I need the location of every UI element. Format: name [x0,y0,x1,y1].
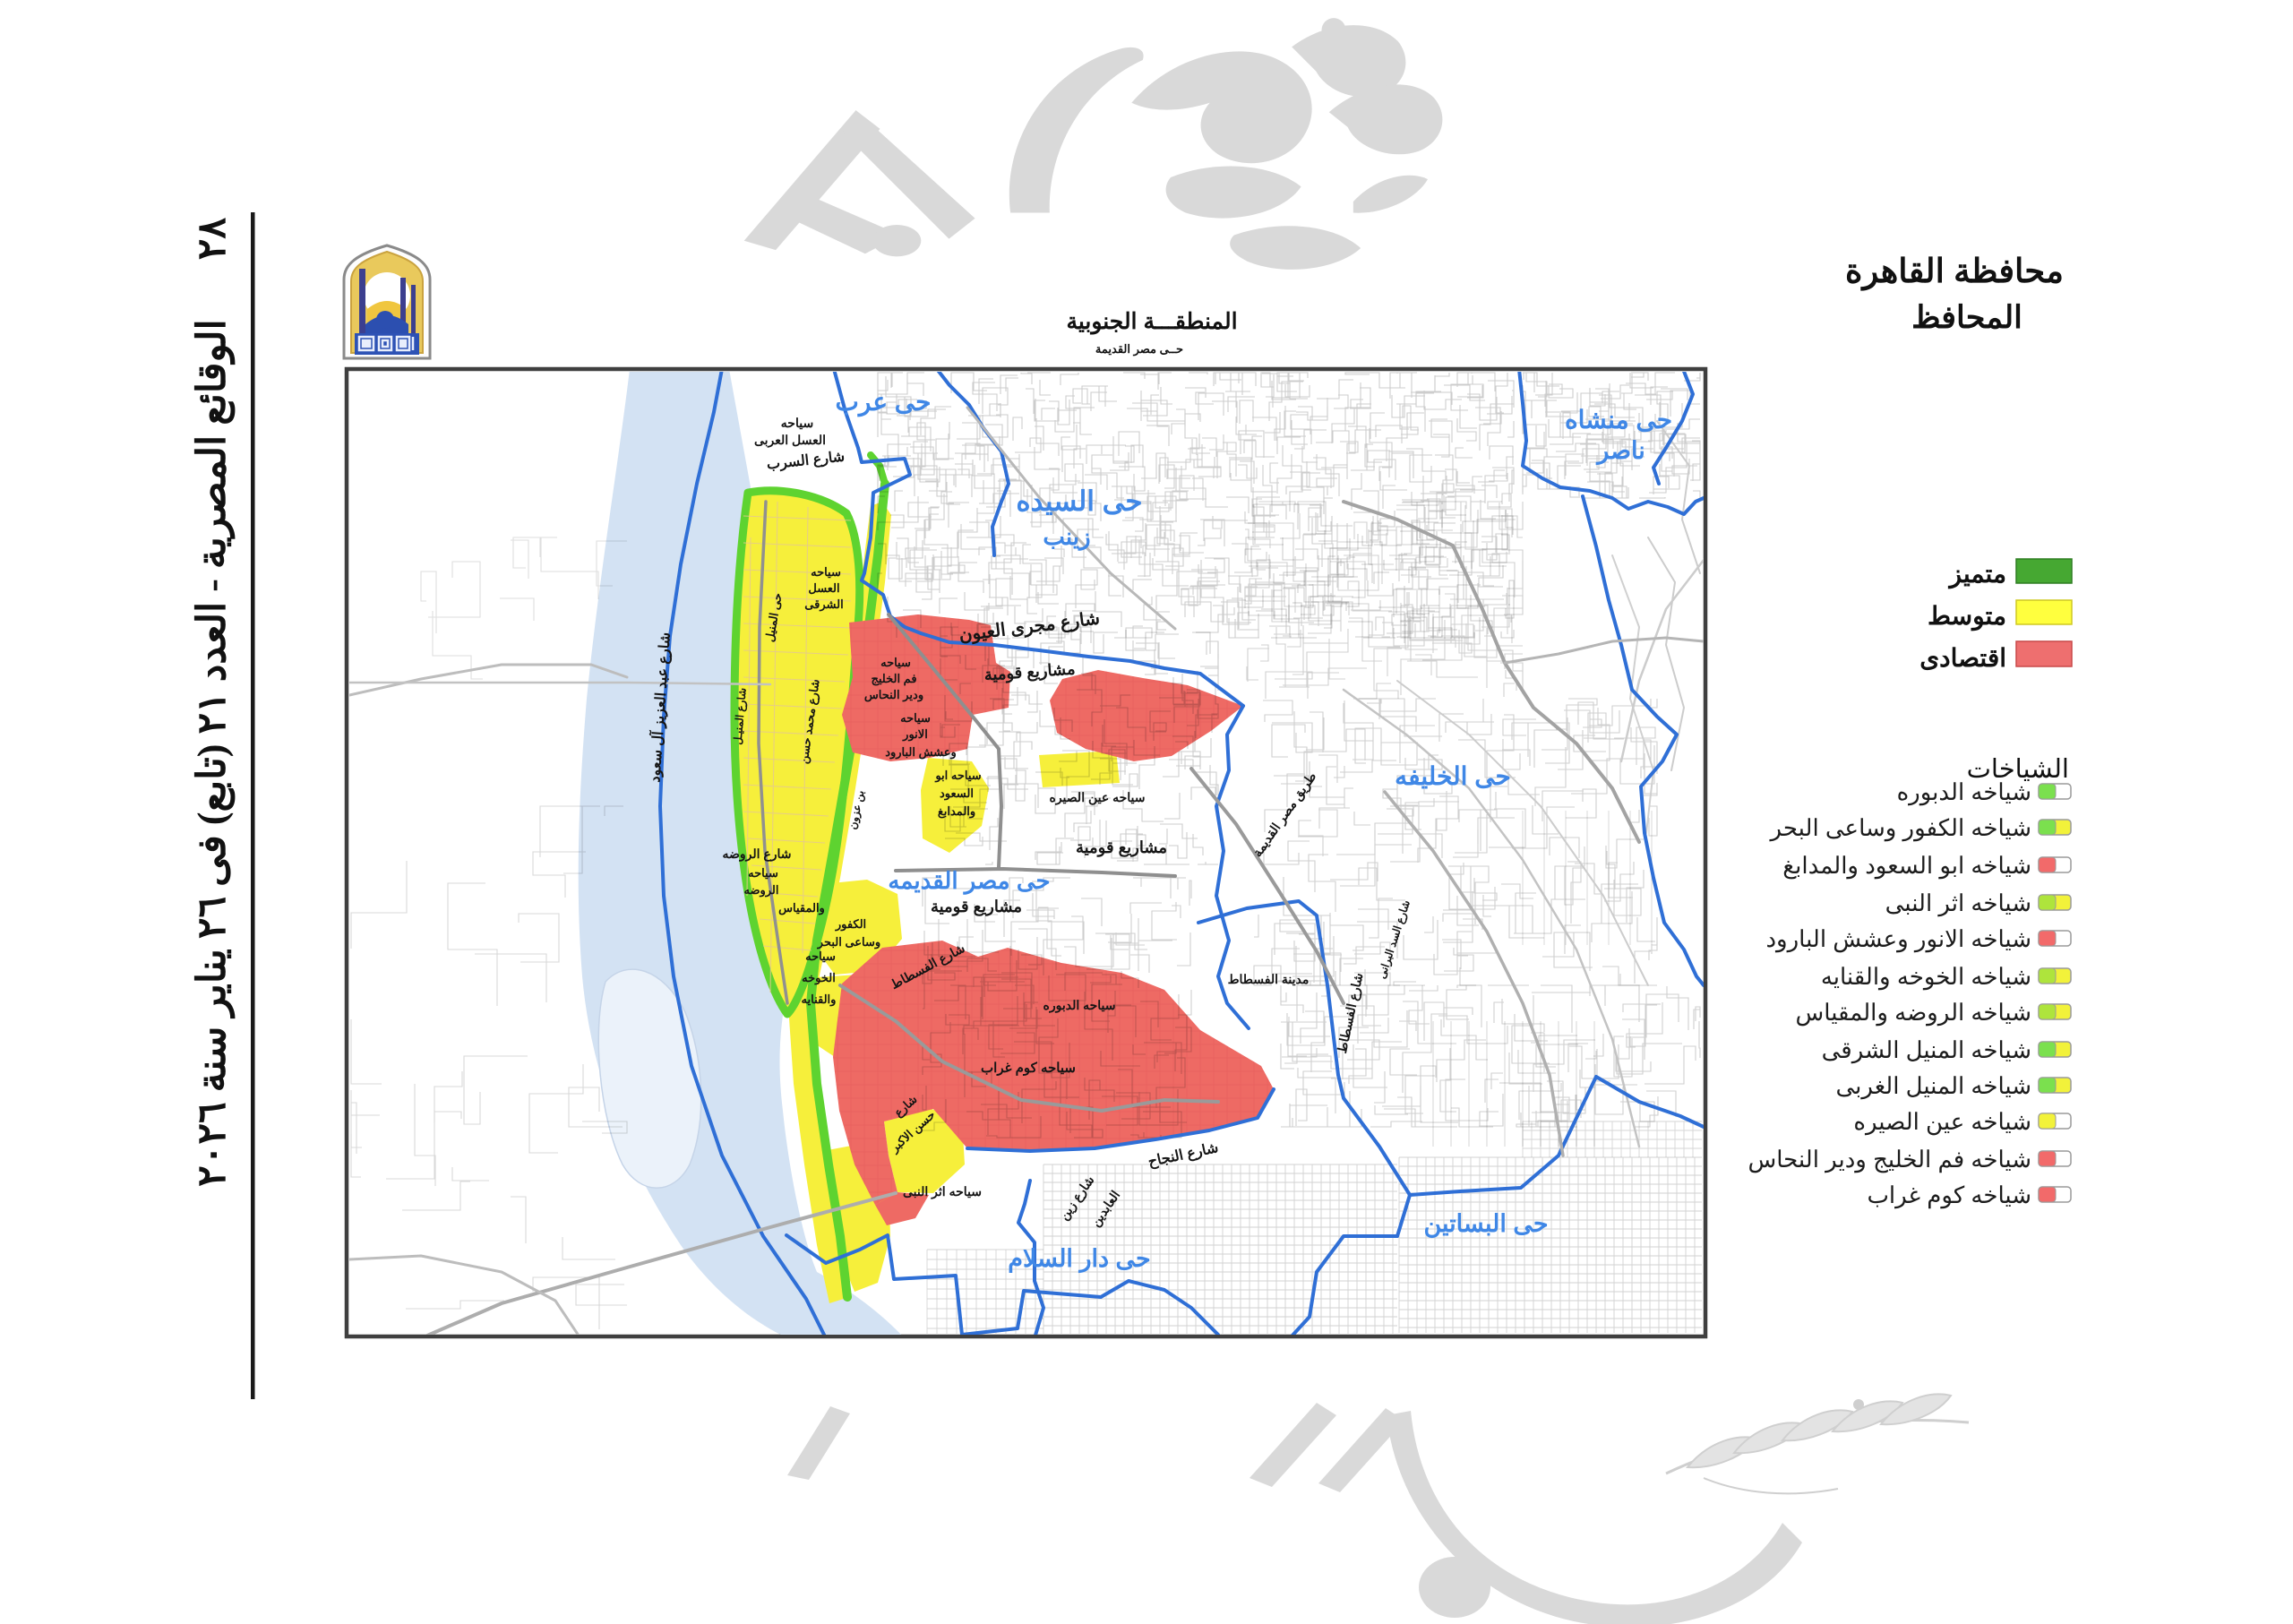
svg-text:زينب: زينب [1043,523,1090,551]
svg-text:والقنايه: والقنايه [802,992,837,1007]
svg-text:الكفور: الكفور [835,917,866,932]
svg-text:شياخه الدبوره: شياخه الدبوره [1897,778,2031,806]
svg-text:والمقياس: والمقياس [778,901,825,915]
svg-text:شياخه ابو السعود والمدابغ: شياخه ابو السعود والمدابغ [1782,852,2031,880]
svg-text:سياحه: سياحه [880,656,911,669]
svg-text:المنطقـــة الجنوبية: المنطقـــة الجنوبية [1066,309,1237,335]
svg-text:وعشش البارود: وعشش البارود [885,745,957,760]
svg-text:ودير النحاس: ودير النحاس [864,688,923,702]
svg-text:شياخه الخوخه والقنايه: شياخه الخوخه والقنايه [1821,963,2031,991]
svg-text:العسل: العسل [808,581,839,595]
svg-text:الخوخه: الخوخه [802,971,836,985]
svg-text:حى الخليفه: حى الخليفه [1395,762,1511,790]
svg-text:سياحه عين الصيره: سياحه عين الصيره [1050,790,1146,805]
svg-text:سياحه: سياحه [811,565,841,579]
svg-text:سياحه: سياحه [748,866,778,880]
svg-text:شارع الروضه: شارع الروضه [722,846,791,862]
svg-text:سياحه: سياحه [805,949,836,963]
svg-text:محافظة القاهرة: محافظة القاهرة [1845,253,2064,291]
svg-text:اقتصادى: اقتصادى [1919,644,2006,672]
svg-text:مدينة الفسطاط: مدينة الفسطاط [1228,972,1310,986]
svg-text:٢٨ الوقائع المصرية - العد: ٢٨ الوقائع المصرية - العدد ٢١ (تابع) فى … [190,218,236,1187]
svg-text:متميز: متميز [1947,560,2006,589]
svg-text:فم الخليج: فم الخليج [871,672,916,686]
svg-text:سياحه: سياحه [900,711,931,725]
svg-text:متوسط: متوسط [1928,602,2006,632]
svg-text:سياحه الدبوره: سياحه الدبوره [1043,998,1116,1013]
svg-text:شياخه الروضه والمقياس: شياخه الروضه والمقياس [1796,999,2031,1027]
svg-text:سياحه: سياحه [781,416,813,430]
svg-text:شياخه الانور وعشش البارود: شياخه الانور وعشش البارود [1765,925,2031,953]
svg-text:شياخه فم الخليج ودير النحاس: شياخه فم الخليج ودير النحاس [1748,1146,2031,1173]
svg-text:والمدابغ: والمدابغ [938,804,975,819]
svg-text:سياحه كوم غراب: سياحه كوم غراب [981,1061,1076,1076]
svg-text:وساعى البحر: وساعى البحر [817,935,880,949]
svg-text:حى البساتين: حى البساتين [1423,1210,1548,1239]
svg-text:حى مصر القديمه: حى مصر القديمه [888,867,1050,895]
svg-text:الروضه: الروضه [743,883,778,898]
svg-text:حى عرب: حى عرب [836,388,932,417]
svg-text:الانور: الانور [902,727,928,742]
svg-text:مشاريع قومية: مشاريع قومية [931,898,1022,916]
svg-text:العسل العربى: العسل العربى [754,433,826,448]
svg-text:حى السيده: حى السيده [1016,485,1142,517]
svg-text:شياخه اثر النبى: شياخه اثر النبى [1885,889,2031,917]
svg-text:شياخه الكفور وساعى البحر: شياخه الكفور وساعى البحر [1769,814,2031,842]
svg-text:مشاريع قومية: مشاريع قومية [1076,838,1167,857]
svg-text:حى دار السلام: حى دار السلام [1008,1245,1150,1274]
svg-text:الشرقى: الشرقى [804,597,843,612]
svg-text:ناصر: ناصر [1595,437,1645,466]
svg-text:شياخه عين الصيره: شياخه عين الصيره [1853,1108,2031,1136]
svg-text:شياخه كوم غراب: شياخه كوم غراب [1867,1181,2031,1209]
svg-text:سياحه ابو: سياحه ابو [934,769,981,783]
svg-text:السعود: السعود [940,786,974,801]
svg-text:حى منشاه: حى منشاه [1565,406,1672,434]
svg-text:شياخه المنيل الشرقى: شياخه المنيل الشرقى [1822,1036,2031,1064]
svg-text:حــى مصر القديمة: حــى مصر القديمة [1095,342,1183,357]
svg-text:سياحه اثر النبى: سياحه اثر النبى [903,1184,982,1199]
svg-text:شياخه المنيل الغربى: شياخه المنيل الغربى [1835,1072,2031,1100]
svg-text:المحافظ: المحافظ [1911,300,2022,335]
